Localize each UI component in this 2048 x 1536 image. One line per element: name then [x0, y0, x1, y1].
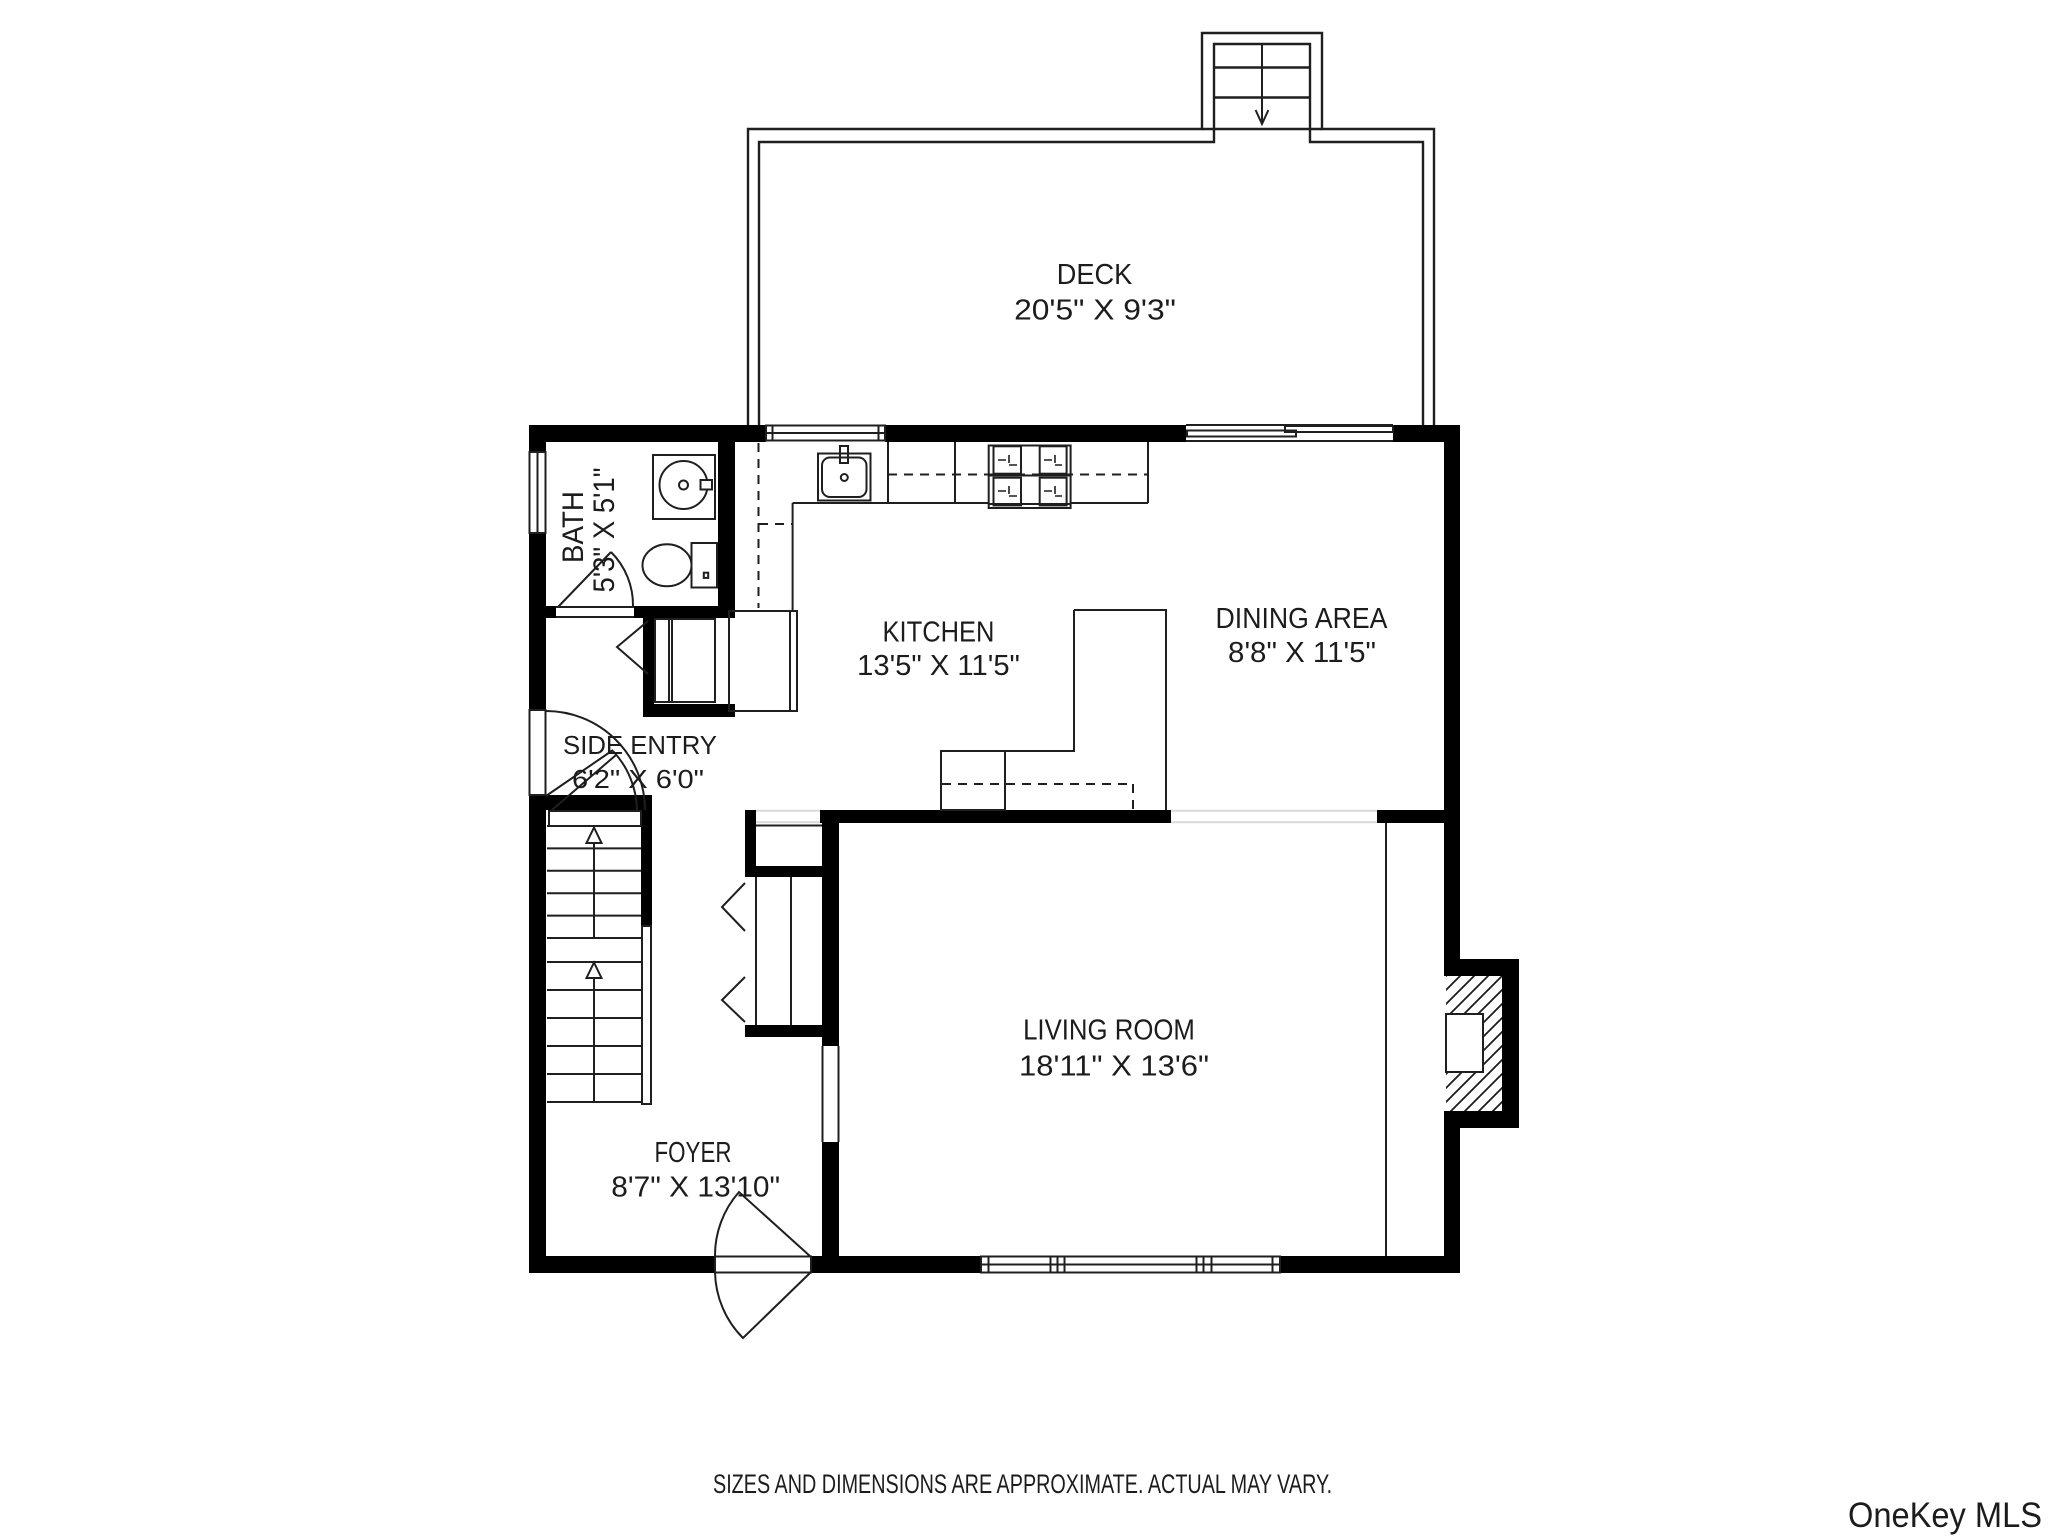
svg-text:6'2" X 6'0": 6'2" X 6'0" — [572, 764, 704, 793]
svg-text:SIZES AND DIMENSIONS ARE APPRO: SIZES AND DIMENSIONS ARE APPROXIMATE. AC… — [713, 1470, 1332, 1500]
svg-text:LIVING ROOM: LIVING ROOM — [1023, 1013, 1195, 1046]
svg-text:KITCHEN: KITCHEN — [883, 615, 995, 648]
svg-text:13'5" X 11'5": 13'5" X 11'5" — [857, 650, 1020, 682]
svg-text:DINING AREA: DINING AREA — [1216, 602, 1388, 634]
svg-text:DECK: DECK — [1057, 258, 1133, 290]
svg-text:FOYER: FOYER — [655, 1137, 732, 1168]
svg-text:8'8" X 11'5": 8'8" X 11'5" — [1228, 637, 1376, 669]
svg-text:8'7" X 13'10": 8'7" X 13'10" — [611, 1171, 780, 1203]
svg-text:20'5" X 9'3": 20'5" X 9'3" — [1014, 294, 1176, 326]
svg-text:BATH: BATH — [557, 491, 590, 563]
svg-text:OneKey MLS: OneKey MLS — [1848, 1496, 2042, 1535]
svg-text:18'11" X 13'6": 18'11" X 13'6" — [1019, 1050, 1209, 1082]
svg-text:SIDE ENTRY: SIDE ENTRY — [563, 732, 717, 760]
svg-text:5'3" X 5'1": 5'3" X 5'1" — [588, 468, 621, 593]
